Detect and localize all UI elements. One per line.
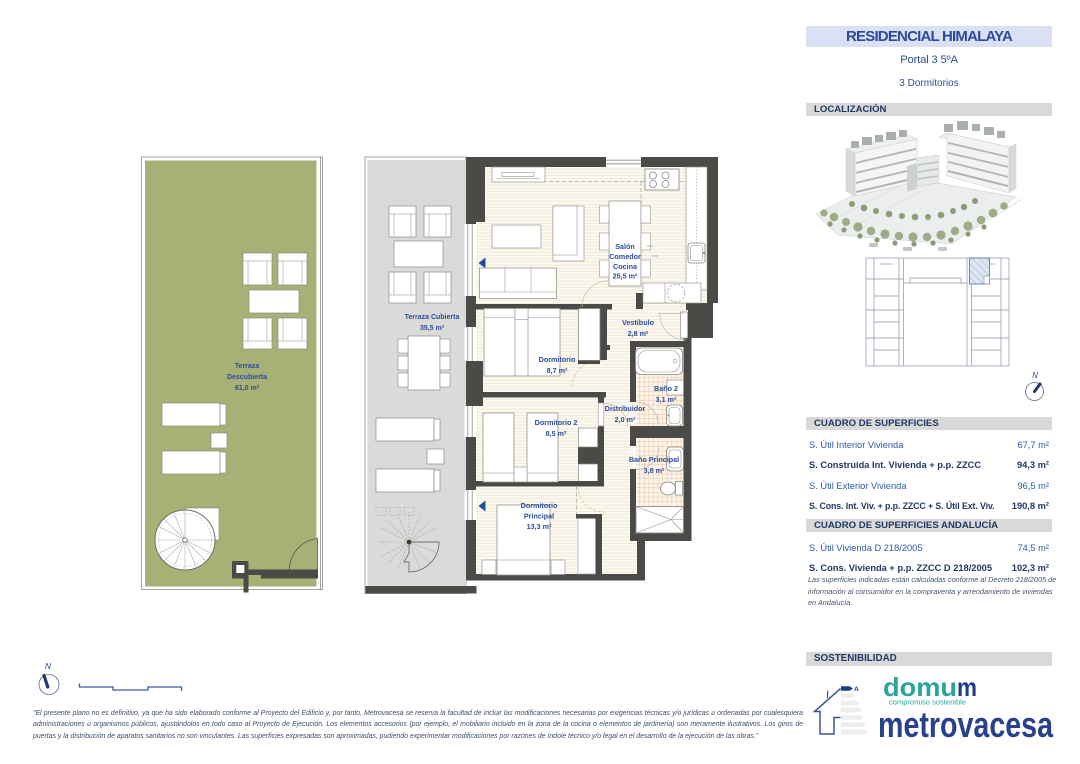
svg-text:Terraza: Terraza: [235, 363, 259, 370]
svg-text:Descubierta: Descubierta: [227, 374, 267, 381]
svg-text:35,5 m²: 35,5 m²: [420, 325, 445, 332]
svg-text:N: N: [1032, 371, 1038, 380]
svg-text:Baño 2: Baño 2: [654, 384, 678, 393]
svg-text:3,8 m²: 3,8 m²: [644, 466, 665, 475]
svg-text:8,5 m²: 8,5 m²: [546, 429, 567, 438]
svg-text:13,3 m²: 13,3 m²: [527, 522, 552, 531]
svg-text:A: A: [854, 686, 859, 693]
svg-text:25,5 m²: 25,5 m²: [613, 272, 638, 281]
svg-text:3,1 m²: 3,1 m²: [656, 395, 677, 404]
svg-text:Principal: Principal: [524, 512, 554, 521]
svg-text:2,8 m²: 2,8 m²: [628, 329, 649, 338]
svg-text:Cocina: Cocina: [613, 262, 638, 271]
svg-text:61,0 m²: 61,0 m²: [235, 385, 260, 392]
svg-text:Terraza Cubierta: Terraza Cubierta: [405, 314, 460, 321]
svg-text:Baño Principal: Baño Principal: [629, 455, 679, 464]
svg-text:Dormitorio 2: Dormitorio 2: [535, 418, 578, 427]
svg-text:8,7 m²: 8,7 m²: [547, 366, 568, 375]
svg-text:Dormitorio: Dormitorio: [521, 501, 558, 510]
svg-text:Distribuidor: Distribuidor: [605, 404, 646, 413]
svg-text:N: N: [45, 661, 52, 671]
svg-text:Salón: Salón: [615, 242, 635, 251]
svg-text:Vestíbulo: Vestíbulo: [622, 318, 655, 327]
svg-text:2,0 m²: 2,0 m²: [615, 415, 636, 424]
svg-text:metrovacesa: metrovacesa: [878, 704, 1054, 745]
svg-text:Dormitorio: Dormitorio: [539, 355, 576, 364]
svg-text:Comedor: Comedor: [609, 252, 641, 261]
